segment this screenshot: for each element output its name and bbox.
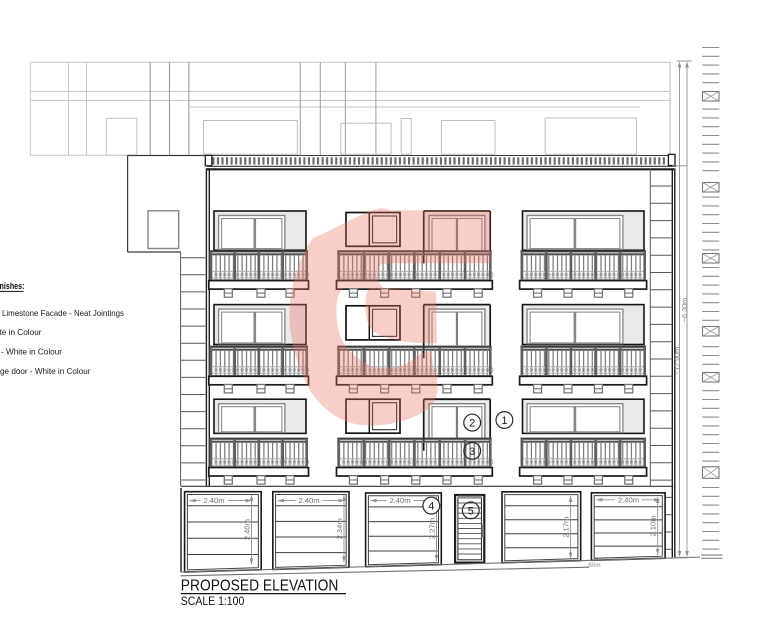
svg-text:2.34m: 2.34m	[335, 518, 344, 539]
svg-text:4: 4	[428, 501, 434, 513]
svg-text:2.17m: 2.17m	[561, 517, 570, 538]
svg-text:3: 3	[469, 446, 475, 458]
svg-text:Limestone Facade - Neat Jointi: Limestone Facade - Neat Jointings	[2, 308, 124, 318]
svg-text:~6.30m: ~6.30m	[680, 298, 689, 322]
svg-text:SCALE 1:100: SCALE 1:100	[181, 595, 245, 608]
svg-text:PROPOSED ELEVATION: PROPOSED ELEVATION	[181, 578, 338, 595]
svg-text:2.10m: 2.10m	[649, 515, 658, 536]
svg-text:- White in Colour: - White in Colour	[1, 347, 62, 357]
svg-text:2.40m: 2.40m	[203, 496, 224, 505]
svg-text:2: 2	[469, 418, 475, 430]
svg-text:2.40m: 2.40m	[389, 496, 410, 505]
svg-text:te in Colour: te in Colour	[0, 327, 42, 337]
svg-text:2.27m: 2.27m	[427, 518, 436, 539]
svg-text:nishes:: nishes:	[0, 281, 25, 292]
svg-text:-.60m: -.60m	[585, 562, 601, 569]
svg-text:2.40m: 2.40m	[618, 495, 639, 504]
svg-text:2.40m: 2.40m	[242, 519, 251, 540]
svg-text:1: 1	[501, 415, 507, 427]
svg-text:2.40m: 2.40m	[298, 496, 319, 505]
svg-text:ge door - White in Colour: ge door - White in Colour	[0, 366, 91, 376]
svg-text:~12.90m: ~12.90m	[673, 347, 682, 375]
svg-text:5: 5	[468, 505, 474, 517]
